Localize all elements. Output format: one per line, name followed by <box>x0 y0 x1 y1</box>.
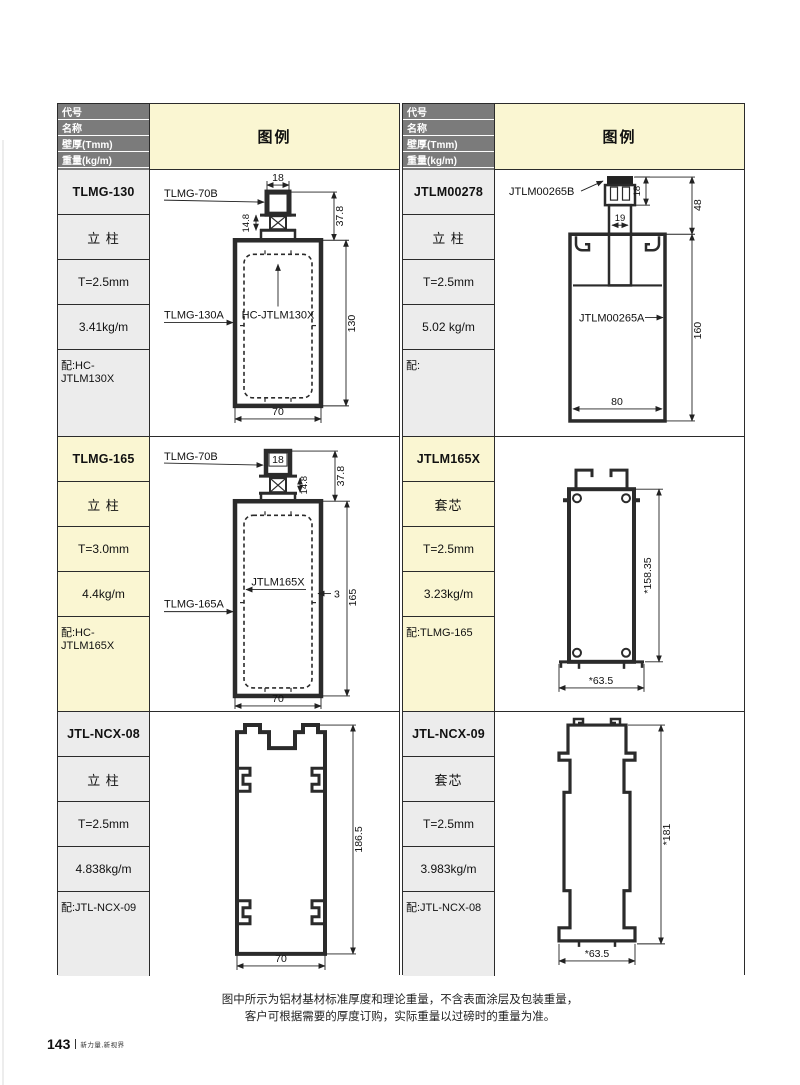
table-row: JTLM00278 立 柱 T=2.5mm 5.02 kg/m 配: <box>403 170 744 437</box>
header-row-thickness: 壁厚(Tmm) <box>58 136 149 152</box>
cross-section-drawing-tlmg130: 18 TLMG-70B 37.8 14.8 HC-JTLM130X TLMG-1… <box>150 170 399 436</box>
profile-thickness: T=2.5mm <box>403 802 494 847</box>
cross-section-drawing-jtlm00278: JTLM00265B 18 19 48 JTLM00265A 160 80 <box>495 170 744 436</box>
footnote: 图中所示为铝材基材标准厚度和理论重量，不含表面涂层及包装重量， 客户可根据需要的… <box>0 992 800 1026</box>
dim-cap-height: 37.8 <box>335 466 347 487</box>
part-label-body: TLMG-130A <box>164 310 225 322</box>
dim-height: 165 <box>347 589 359 607</box>
dim-height: *181 <box>661 823 673 845</box>
profile-info: JTLM00278 立 柱 T=2.5mm 5.02 kg/m 配: <box>403 170 495 436</box>
profile-weight: 3.983kg/m <box>403 847 494 892</box>
profile-diagram: 186.5 70 <box>150 712 399 976</box>
profile-match: 配:HC-JTLM130X <box>58 350 149 436</box>
dim-width: 70 <box>272 693 284 705</box>
table-row: TLMG-130 立 柱 T=2.5mm 3.41kg/m 配:HC-JTLM1… <box>58 170 399 437</box>
profile-name: 立 柱 <box>58 482 149 527</box>
dim-height: 186.5 <box>353 826 365 852</box>
dim-cap-height: 48 <box>692 199 704 211</box>
dim-clamp-height: 18 <box>632 186 643 197</box>
profile-diagram: 18 TLMG-70B 14.8 37.8 JTLM165X 3 165 TLM… <box>150 437 399 711</box>
table-row: JTLM165X 套芯 T=2.5mm 3.23kg/m 配:TLMG-165 <box>403 437 744 712</box>
profile-code: JTLM00278 <box>403 170 494 215</box>
profile-thickness: T=2.5mm <box>403 527 494 572</box>
profile-thickness: T=3.0mm <box>58 527 149 572</box>
profile-diagram: *158.35 *63.5 <box>495 437 744 711</box>
profile-match: 配:TLMG-165 <box>403 617 494 711</box>
table-row: JTL-NCX-08 立 柱 T=2.5mm 4.838kg/m 配:JTL-N… <box>58 712 399 976</box>
footnote-line-1: 图中所示为铝材基材标准厚度和理论重量，不含表面涂层及包装重量， <box>0 992 800 1009</box>
dim-width: *63.5 <box>585 948 610 960</box>
profile-weight: 3.23kg/m <box>403 572 494 617</box>
profile-weight: 5.02 kg/m <box>403 305 494 350</box>
cross-section-drawing-tlmg165: 18 TLMG-70B 14.8 37.8 JTLM165X 3 165 TLM… <box>150 437 399 711</box>
profile-name: 立 柱 <box>403 215 494 260</box>
header-row-weight: 重量(kg/m) <box>58 152 149 168</box>
header-row-name: 名称 <box>58 120 149 136</box>
header-label-column: 代号 名称 壁厚(Tmm) 重量(kg/m) 配套 <box>403 104 495 169</box>
dim-width: 80 <box>611 396 623 408</box>
profile-match: 配:JTL-NCX-08 <box>403 892 494 976</box>
part-label-insert: HC-JTLM130X <box>242 310 315 322</box>
dim-top-width: 18 <box>272 454 284 466</box>
profile-diagram: *181 *63.5 <box>495 712 744 976</box>
dim-stem-width: 19 <box>615 213 626 224</box>
profile-info: JTL-NCX-08 立 柱 T=2.5mm 4.838kg/m 配:JTL-N… <box>58 712 150 976</box>
profile-weight: 4.838kg/m <box>58 847 149 892</box>
profile-diagram: JTLM00265B 18 19 48 JTLM00265A 160 80 <box>495 170 744 436</box>
dim-width: 70 <box>275 953 287 965</box>
profile-code: TLMG-130 <box>58 170 149 215</box>
profile-match: 配: <box>403 350 494 436</box>
profile-code: JTL-NCX-09 <box>403 712 494 757</box>
page-edge-shadow <box>2 140 4 1085</box>
dim-stem: 14.8 <box>299 476 310 495</box>
profile-weight: 4.4kg/m <box>58 572 149 617</box>
dim-width: *63.5 <box>589 675 614 687</box>
profile-info: TLMG-130 立 柱 T=2.5mm 3.41kg/m 配:HC-JTLM1… <box>58 170 150 436</box>
legend-header: 图例 <box>150 104 399 169</box>
table-row: TLMG-165 立 柱 T=3.0mm 4.4kg/m 配:HC-JTLM16… <box>58 437 399 712</box>
part-label-body: TLMG-165A <box>164 599 225 611</box>
part-label-top: JTLM00265B <box>509 186 574 198</box>
header-row-code: 代号 <box>403 104 494 120</box>
table-row: JTL-NCX-09 套芯 T=2.5mm 3.983kg/m 配:JTL-NC… <box>403 712 744 976</box>
profile-thickness: T=2.5mm <box>403 260 494 305</box>
dim-height: *158.35 <box>642 557 654 593</box>
profile-match: 配:JTL-NCX-09 <box>58 892 149 976</box>
profile-info: JTLM165X 套芯 T=2.5mm 3.23kg/m 配:TLMG-165 <box>403 437 495 711</box>
dim-height: 160 <box>692 322 704 340</box>
profile-name: 套芯 <box>403 757 494 802</box>
footer-divider <box>75 1039 76 1049</box>
profile-thickness: T=2.5mm <box>58 260 149 305</box>
page-number: 143 <box>47 1036 70 1052</box>
dim-width: 70 <box>272 406 284 418</box>
table-header: 代号 名称 壁厚(Tmm) 重量(kg/m) 配套 图例 <box>58 104 399 170</box>
profile-name: 立 柱 <box>58 215 149 260</box>
profile-name: 套芯 <box>403 482 494 527</box>
profile-code: JTLM165X <box>403 437 494 482</box>
profile-match: 配:HC-JTLM165X <box>58 617 149 711</box>
cross-section-drawing-jtlncx08: 186.5 70 <box>150 712 399 976</box>
profile-info: JTL-NCX-09 套芯 T=2.5mm 3.983kg/m 配:JTL-NC… <box>403 712 495 976</box>
footer-slogan: 新力量,新视界 <box>80 1039 124 1049</box>
profile-info: TLMG-165 立 柱 T=3.0mm 4.4kg/m 配:HC-JTLM16… <box>58 437 150 711</box>
profile-code: TLMG-165 <box>58 437 149 482</box>
footnote-line-2: 客户可根据需要的厚度订购，实际重量以过磅时的重量为准。 <box>0 1009 800 1026</box>
page-footer: 143 新力量,新视界 <box>47 1036 125 1052</box>
part-label-insert: JTLM165X <box>251 577 305 589</box>
dim-stem: 14.8 <box>241 214 252 233</box>
dim-top-width: 18 <box>272 172 284 184</box>
legend-header: 图例 <box>495 104 744 169</box>
cross-section-drawing-jtlm165x: *158.35 *63.5 <box>495 437 744 711</box>
dim-cap-height: 37.8 <box>334 206 346 227</box>
profile-thickness: T=2.5mm <box>58 802 149 847</box>
header-label-column: 代号 名称 壁厚(Tmm) 重量(kg/m) 配套 <box>58 104 150 169</box>
profile-weight: 3.41kg/m <box>58 305 149 350</box>
table-header: 代号 名称 壁厚(Tmm) 重量(kg/m) 配套 图例 <box>403 104 744 170</box>
profile-code: JTL-NCX-08 <box>58 712 149 757</box>
header-row-code: 代号 <box>58 104 149 120</box>
profile-diagram: 18 TLMG-70B 37.8 14.8 HC-JTLM130X TLMG-1… <box>150 170 399 436</box>
part-label-top: TLMG-70B <box>164 451 218 463</box>
part-label-top: TLMG-70B <box>164 188 218 200</box>
header-row-name: 名称 <box>403 120 494 136</box>
part-label-body: JTLM00265A <box>579 313 645 325</box>
profile-name: 立 柱 <box>58 757 149 802</box>
dim-height: 130 <box>346 315 358 333</box>
dim-wall: 3 <box>334 589 340 601</box>
profile-table-left: 代号 名称 壁厚(Tmm) 重量(kg/m) 配套 图例 TLMG-130 立 … <box>57 103 400 975</box>
header-row-thickness: 壁厚(Tmm) <box>403 136 494 152</box>
header-row-weight: 重量(kg/m) <box>403 152 494 168</box>
profile-table-right: 代号 名称 壁厚(Tmm) 重量(kg/m) 配套 图例 JTLM00278 立… <box>402 103 745 975</box>
cross-section-drawing-jtlncx09: *181 *63.5 <box>495 712 744 976</box>
